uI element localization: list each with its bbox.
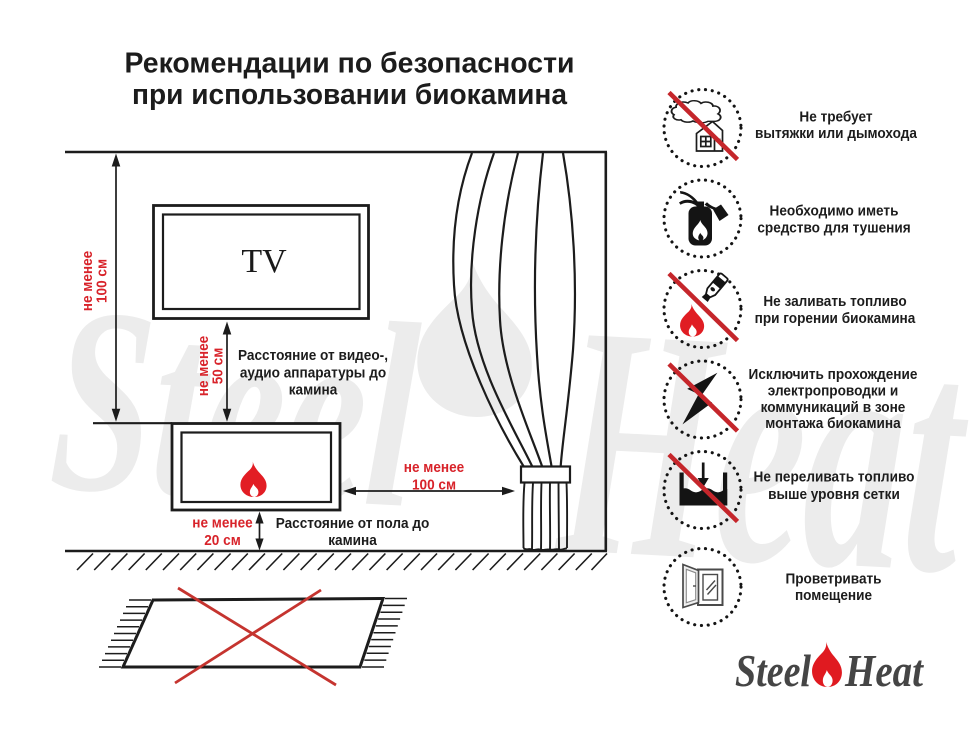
svg-text:Не заливать топливопри горении: Не заливать топливопри горении биокамина [755,293,916,327]
svg-text:Не требуетвытяжки или дымохода: Не требуетвытяжки или дымохода [755,109,917,143]
svg-text:Исключить прохождениеэлектропр: Исключить прохождениеэлектропроводки ико… [749,366,918,432]
svg-text:при использовании биокамина: при использовании биокамина [132,79,568,111]
svg-text:Не переливать топливовыше уров: Не переливать топливовыше уровня сетки [754,469,915,504]
svg-text:Необходимо иметьсредство для т: Необходимо иметьсредство для тушения [757,203,910,237]
svg-text:не менее100 см: не менее100 см [404,459,465,494]
svg-text:Steel: Steel [735,645,811,696]
svg-text:Проветриватьпомещение: Проветриватьпомещение [785,571,881,604]
svg-text:TV: TV [241,243,287,280]
svg-text:не менее100 см: не менее100 см [79,251,111,312]
svg-text:Рекомендации по безопасности: Рекомендации по безопасности [125,48,575,80]
svg-text:Heat: Heat [844,645,924,696]
